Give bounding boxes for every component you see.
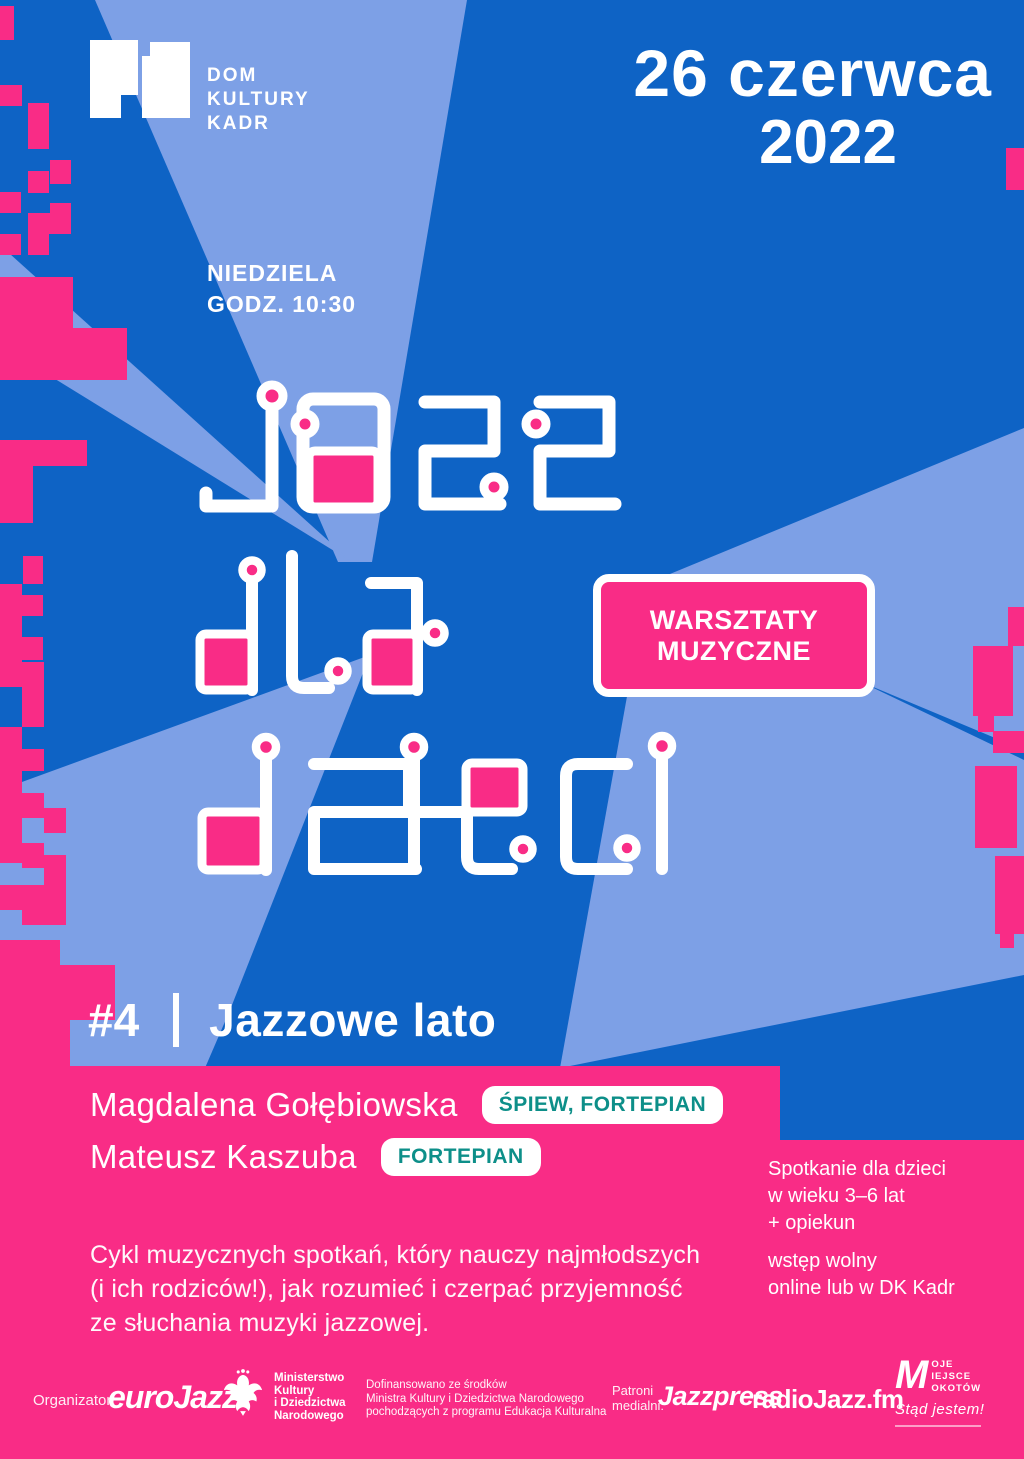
- poster: DOM KULTURY KADR 26 czerwca 2022 NIEDZIE…: [0, 0, 1024, 1459]
- mmm-line: oje: [931, 1359, 981, 1371]
- workshop-badge-line-2: MUZYCZNE: [657, 636, 811, 667]
- audience-line: w wieku 3–6 lat: [768, 1183, 1004, 1210]
- letter-c: [566, 764, 637, 869]
- episode-title-row: #4 Jazzowe lato: [88, 993, 496, 1047]
- patrons-label-line: Patroni: [612, 1383, 664, 1398]
- audience-info: Spotkanie dla dzieci w wieku 3–6 lat + o…: [768, 1156, 1004, 1237]
- performer-name: Magdalena Gołębiowska: [90, 1086, 458, 1124]
- letter-j: [206, 385, 283, 506]
- mmm-rule: [895, 1425, 981, 1427]
- performer-row: Mateusz Kaszuba FORTEPIAN: [90, 1138, 541, 1176]
- ministry-line: Ministerstwo: [274, 1372, 346, 1385]
- patrons-label-line: medialni:: [612, 1398, 664, 1413]
- description-line: ze słuchania muzyki jazzowej.: [90, 1306, 700, 1340]
- funding-note: Dofinansowano ze środków Ministra Kultur…: [366, 1379, 606, 1420]
- letter-z3: [314, 764, 416, 869]
- letter-a2: [367, 583, 445, 690]
- ministry-line: Kultury: [274, 1385, 346, 1398]
- letter-z2: [526, 402, 615, 504]
- admission-line: wstęp wolny: [768, 1248, 1004, 1275]
- letter-l: [292, 556, 348, 688]
- letter-a1: [295, 399, 384, 507]
- episode-number: #4: [88, 993, 139, 1047]
- letter-d2: [202, 737, 276, 870]
- organizer-label: Organizator:: [33, 1392, 116, 1409]
- workshop-badge-line-1: WARSZTATY: [650, 605, 818, 636]
- eagle-emblem-icon: [222, 1366, 264, 1418]
- mmm-slogan: Stąd jestem!: [895, 1401, 1005, 1418]
- letter-i2: [652, 736, 672, 869]
- performer-row: Magdalena Gołębiowska ŚPIEW, FORTEPIAN: [90, 1086, 723, 1124]
- ministry-line: i Dziedzictwa: [274, 1397, 346, 1410]
- letter-z1: [425, 402, 504, 504]
- letter-e: [466, 763, 533, 869]
- admission-info: wstęp wolny online lub w DK Kadr: [768, 1248, 1004, 1302]
- funding-line: Dofinansowano ze środków: [366, 1379, 606, 1393]
- description-line: Cykl muzycznych spotkań, który nauczy na…: [90, 1238, 700, 1272]
- media-patrons-label: Patroni medialni:: [612, 1383, 664, 1413]
- eurojazz-logo: euroJazz: [108, 1379, 237, 1416]
- mmm-line: okotów: [931, 1383, 981, 1395]
- description-line: (i ich rodziców!), jak rozumieć i czerpa…: [90, 1272, 700, 1306]
- event-description: Cykl muzycznych spotkań, który nauczy na…: [90, 1238, 700, 1340]
- ministry-line: Narodowego: [274, 1410, 346, 1423]
- admission-line: online lub w DK Kadr: [768, 1275, 1004, 1302]
- radiojazz-logo: radioJazz.fm: [752, 1384, 904, 1415]
- ministry-logo-text: Ministerstwo Kultury i Dziedzictwa Narod…: [274, 1372, 346, 1422]
- mmm-initial: M: [895, 1356, 928, 1394]
- mmm-line: iejsce: [931, 1371, 981, 1383]
- moje-miejsce-mokotow-logo: M oje iejsce okotów Stąd jestem!: [895, 1356, 1005, 1427]
- workshop-badge: WARSZTATY MUZYCZNE: [593, 574, 875, 697]
- funding-line: Ministra Kultury i Dziedzictwa Narodoweg…: [366, 1393, 606, 1407]
- letter-d1: [200, 561, 262, 691]
- funding-line: pochodzących z programu Edukacja Kultura…: [366, 1406, 606, 1420]
- letter-i1: [404, 737, 466, 869]
- performer-role-badge: ŚPIEW, FORTEPIAN: [482, 1086, 724, 1124]
- audience-line: Spotkanie dla dzieci: [768, 1156, 1004, 1183]
- audience-line: + opiekun: [768, 1210, 1004, 1237]
- separator-bar: [173, 993, 179, 1047]
- performer-role-badge: FORTEPIAN: [381, 1138, 541, 1176]
- episode-title: Jazzowe lato: [209, 993, 496, 1047]
- performer-name: Mateusz Kaszuba: [90, 1138, 357, 1176]
